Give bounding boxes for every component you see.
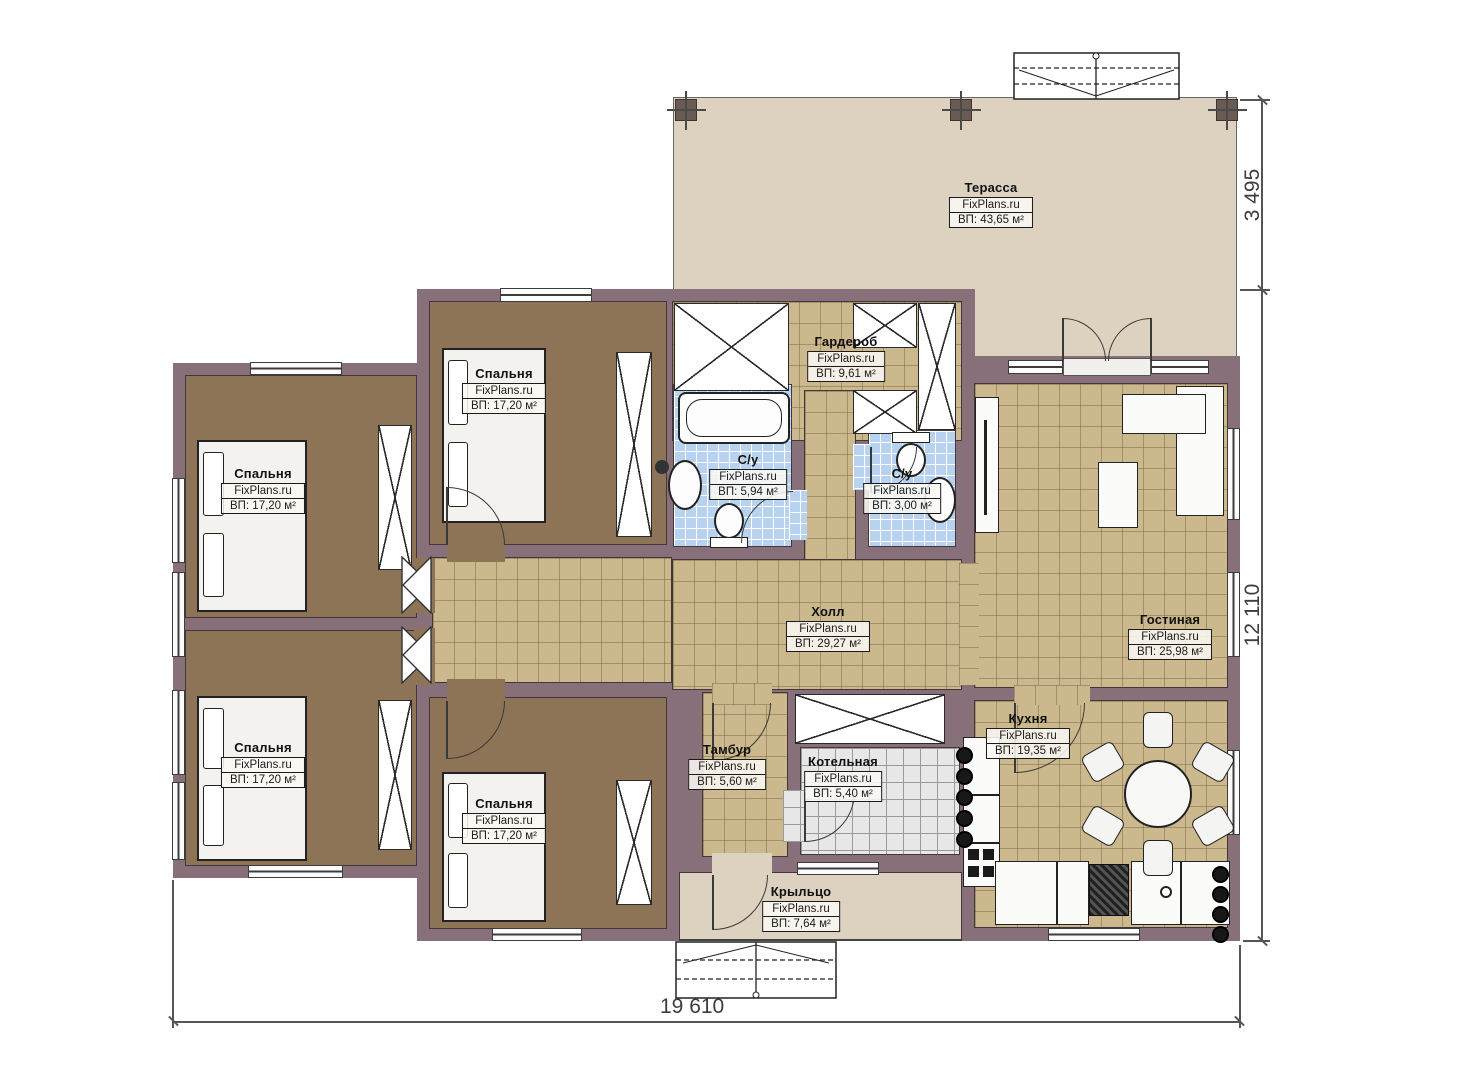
room-name: Тамбур — [688, 742, 766, 757]
swing-door-symbol — [400, 556, 433, 614]
room-label-hall: Холл FixPlans.ru ВП: 29,27 м² — [786, 604, 870, 652]
room-label-bedroom-top-left: Спальня FixPlans.ru ВП: 17,20 м² — [221, 466, 305, 514]
window — [492, 928, 582, 941]
brand-label: FixPlans.ru — [987, 729, 1069, 743]
window — [1151, 360, 1209, 374]
room-label-bedroom-bottom-middle: Спальня FixPlans.ru ВП: 17,20 м² — [462, 796, 546, 844]
chair — [1143, 712, 1173, 748]
room-name: Крыльцо — [762, 884, 840, 899]
extension-line — [1239, 945, 1241, 1028]
wardrobe-unit — [378, 425, 412, 570]
room-area: ВП: 25,98 м² — [1129, 644, 1211, 659]
room-name: Спальня — [221, 466, 305, 481]
brand-label: FixPlans.ru — [710, 470, 786, 484]
room-label-bathroom-small: С/у FixPlans.ru ВП: 3,00 м² — [863, 466, 941, 514]
wardrobe-unit — [853, 390, 917, 434]
door-leaf — [1062, 318, 1064, 361]
brand-label: FixPlans.ru — [463, 814, 545, 828]
room-name: Терасса — [949, 180, 1033, 195]
extension-line — [1243, 940, 1270, 942]
window — [797, 862, 879, 875]
door-opening — [783, 790, 805, 842]
room-area: ВП: 5,40 м² — [805, 786, 881, 801]
kitchen-counter — [995, 861, 1057, 925]
room-name: Гардероб — [807, 334, 885, 349]
door-leaf — [446, 701, 448, 759]
hall-closet — [795, 694, 945, 744]
room-area: ВП: 17,20 м² — [222, 772, 304, 787]
room-name: Котельная — [804, 754, 882, 769]
double-bed — [442, 772, 546, 922]
wardrobe-unit — [616, 780, 652, 905]
hall-passage-floor — [804, 390, 856, 560]
window — [1008, 360, 1063, 374]
window — [250, 362, 342, 375]
room-area: ВП: 9,61 м² — [808, 366, 884, 381]
room-name: Гостиная — [1128, 612, 1212, 627]
dimension-terrace-depth: 3 495 — [1241, 169, 1265, 222]
hall-living-opening — [959, 563, 979, 685]
terrace-post — [950, 99, 972, 121]
room-area: ВП: 5,94 м² — [710, 484, 786, 499]
terrace-post — [675, 99, 697, 121]
dimension-house-width: 19 610 — [660, 995, 724, 1019]
door-leaf — [712, 875, 714, 930]
burner-icon — [983, 849, 994, 860]
brand-label: FixPlans.ru — [1129, 630, 1211, 644]
wardrobe-unit — [378, 700, 412, 850]
burner-icon — [968, 849, 979, 860]
dimension-line-vertical — [1261, 100, 1263, 941]
room-name: Спальня — [462, 366, 546, 381]
bathtub — [678, 392, 790, 444]
faucet-icon — [1160, 886, 1172, 898]
room-area: ВП: 17,20 м² — [222, 498, 304, 513]
door-opening — [712, 853, 772, 875]
brand-label: FixPlans.ru — [808, 352, 884, 366]
sofa-section — [1122, 394, 1206, 434]
door-opening — [447, 679, 505, 701]
room-name: Холл — [786, 604, 870, 619]
corridor-floor — [432, 557, 672, 683]
room-label-terrace: Терасса FixPlans.ru ВП: 43,65 м² — [949, 180, 1033, 228]
floor-plan: Терасса FixPlans.ru ВП: 43,65 м² Спальня… — [0, 0, 1473, 1080]
brand-label: FixPlans.ru — [805, 772, 881, 786]
chair — [1143, 840, 1173, 876]
room-name: Спальня — [221, 740, 305, 755]
window — [1227, 428, 1240, 520]
brand-label: FixPlans.ru — [689, 760, 765, 774]
terrace-stairs — [1013, 52, 1180, 100]
room-area: ВП: 7,64 м² — [763, 916, 839, 931]
radiator-dots — [1212, 866, 1229, 943]
room-label-porch: Крыльцо FixPlans.ru ВП: 7,64 м² — [762, 884, 840, 932]
room-label-kitchen: Кухня FixPlans.ru ВП: 19,35 м² — [986, 711, 1070, 759]
room-area: ВП: 3,00 м² — [864, 498, 940, 513]
brand-label: FixPlans.ru — [787, 622, 869, 636]
kitchen-counter — [1057, 861, 1089, 925]
room-area: ВП: 43,65 м² — [950, 212, 1032, 227]
wall-valve — [655, 460, 669, 474]
sink — [668, 460, 702, 510]
room-label-bedroom-top-middle: Спальня FixPlans.ru ВП: 17,20 м² — [462, 366, 546, 414]
window — [500, 288, 592, 302]
burner-icon — [968, 866, 979, 877]
door-opening — [1014, 685, 1090, 705]
door-leaf — [446, 487, 448, 545]
window — [1048, 928, 1140, 941]
window — [248, 865, 343, 878]
brand-label: FixPlans.ru — [222, 484, 304, 498]
room-area: ВП: 29,27 м² — [787, 636, 869, 651]
burner-icon — [983, 866, 994, 877]
room-name: С/у — [709, 452, 787, 467]
dimension-house-depth: 12 110 — [1241, 584, 1265, 647]
window — [172, 782, 185, 860]
swing-door-symbol — [400, 626, 433, 684]
extension-line — [172, 880, 174, 1028]
porch-stairs — [675, 941, 837, 999]
toilet-tank — [892, 432, 930, 443]
room-label-wardrobe: Гардероб FixPlans.ru ВП: 9,61 м² — [807, 334, 885, 382]
toilet — [714, 503, 744, 539]
door-leaf — [1150, 318, 1152, 361]
brand-label: FixPlans.ru — [950, 198, 1032, 212]
brand-label: FixPlans.ru — [463, 384, 545, 398]
tv-bench — [975, 397, 999, 533]
room-name: Кухня — [986, 711, 1070, 726]
extension-line — [1240, 99, 1270, 101]
dining-table — [1124, 760, 1192, 828]
window — [1227, 572, 1240, 657]
room-label-bathroom-big: С/у FixPlans.ru ВП: 5,94 м² — [709, 452, 787, 500]
brand-label: FixPlans.ru — [763, 902, 839, 916]
room-area: ВП: 17,20 м² — [463, 828, 545, 843]
wardrobe-unit — [918, 303, 956, 430]
window — [172, 572, 185, 657]
window — [172, 478, 185, 563]
room-area: ВП: 19,35 м² — [987, 743, 1069, 758]
room-label-living-room: Гостиная FixPlans.ru ВП: 25,98 м² — [1128, 612, 1212, 660]
room-label-bedroom-bottom-left: Спальня FixPlans.ru ВП: 17,20 м² — [221, 740, 305, 788]
terrace-post — [1216, 99, 1238, 121]
brand-label: FixPlans.ru — [222, 758, 304, 772]
cooktop — [1089, 864, 1129, 916]
window — [172, 690, 185, 775]
room-area: ВП: 5,60 м² — [689, 774, 765, 789]
room-area: ВП: 17,20 м² — [463, 398, 545, 413]
room-label-boiler-room: Котельная FixPlans.ru ВП: 5,40 м² — [804, 754, 882, 802]
wardrobe-unit — [616, 352, 652, 537]
boiler-stack — [956, 747, 973, 848]
wardrobe-unit — [674, 303, 789, 391]
room-label-vestibule: Тамбур FixPlans.ru ВП: 5,60 м² — [688, 742, 766, 790]
tv — [984, 420, 987, 515]
room-name: Спальня — [462, 796, 546, 811]
room-name: С/у — [863, 466, 941, 481]
door-opening — [712, 683, 772, 705]
dimension-line-horizontal — [173, 1021, 1240, 1023]
extension-line — [1240, 289, 1270, 291]
brand-label: FixPlans.ru — [864, 484, 940, 498]
coffee-table — [1098, 462, 1138, 528]
